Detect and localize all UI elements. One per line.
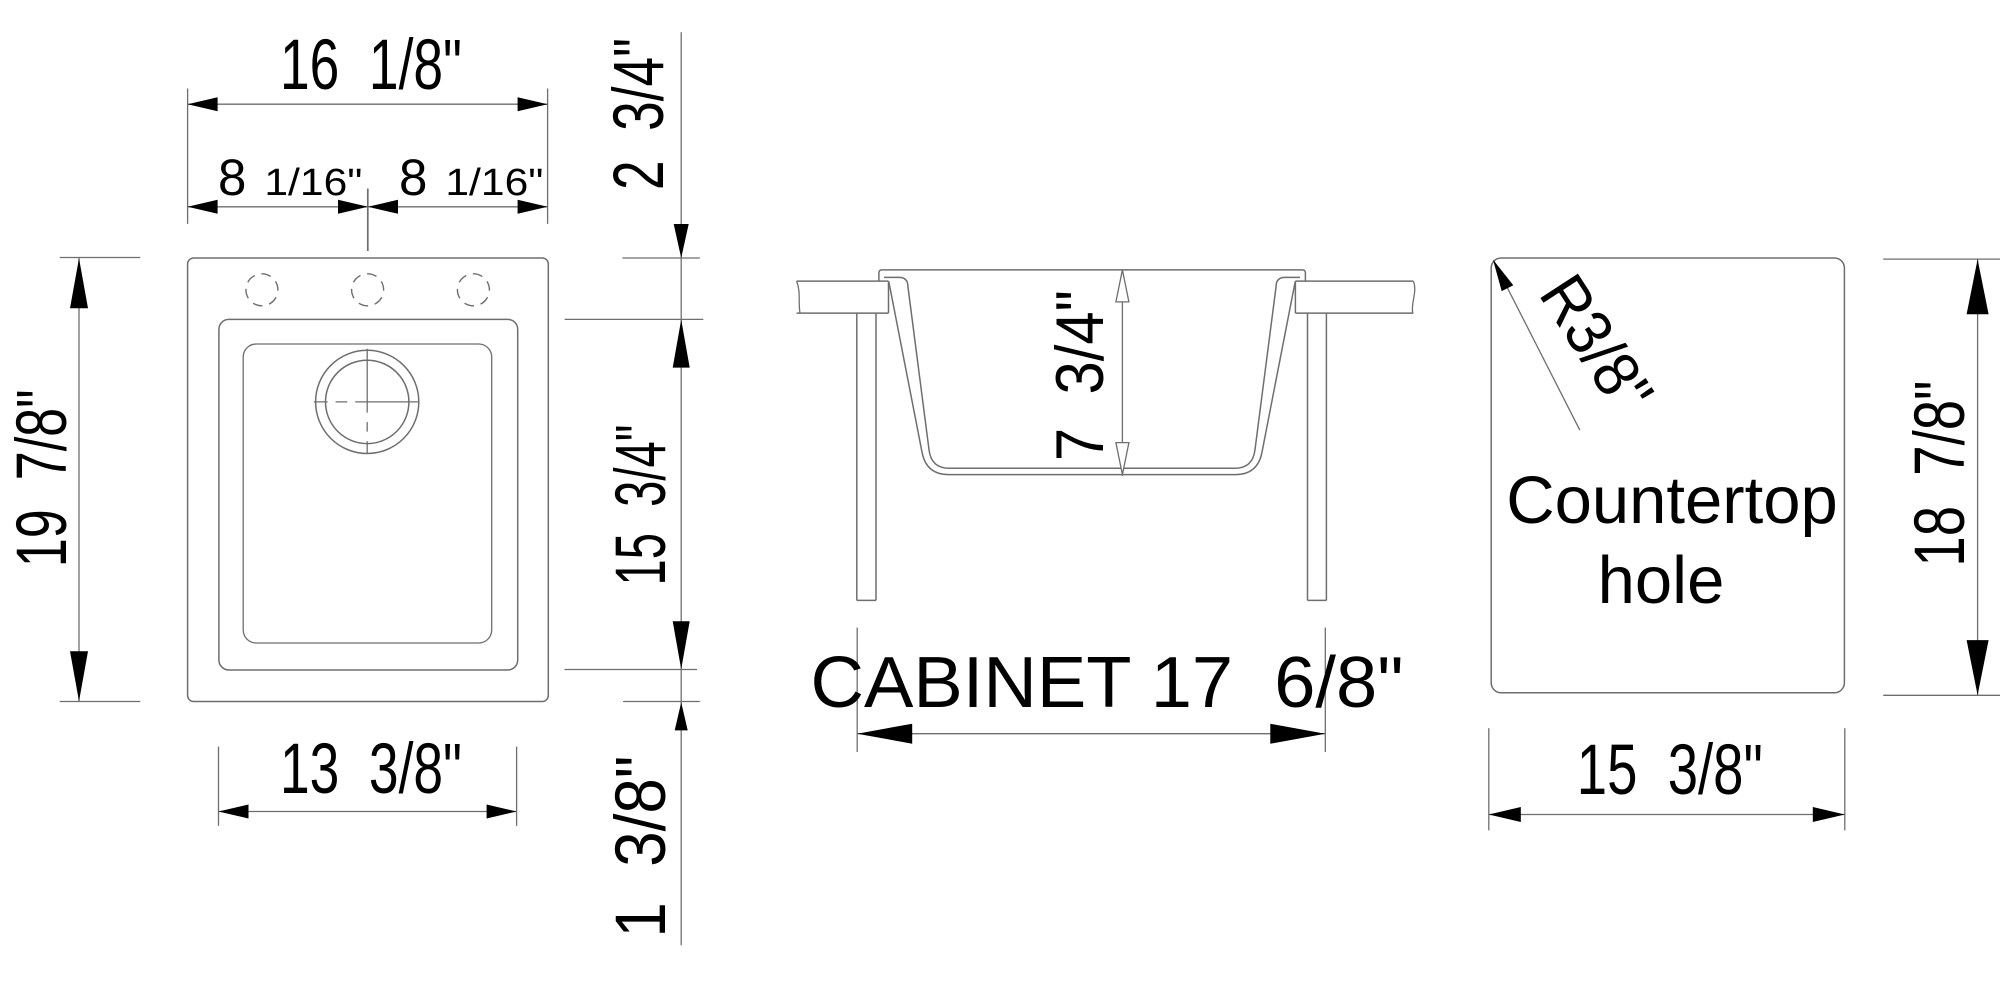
svg-text:15 3/4": 15 3/4"	[600, 425, 681, 586]
svg-text:2 3/4": 2 3/4"	[598, 38, 679, 190]
svg-text:16 1/8": 16 1/8"	[280, 24, 462, 105]
svg-text:CABINET 17 6/8": CABINET 17 6/8"	[811, 643, 1404, 723]
svg-text:19 7/8": 19 7/8"	[1, 389, 82, 567]
svg-text:hole: hole	[1598, 543, 1725, 618]
svg-text:15 3/8": 15 3/8"	[1577, 729, 1763, 810]
svg-text:1 3/8": 1 3/8"	[600, 756, 681, 938]
svg-text:13 3/8": 13 3/8"	[280, 728, 462, 809]
svg-text:Countertop: Countertop	[1506, 463, 1838, 538]
svg-text:18 7/8": 18 7/8"	[1899, 381, 1980, 567]
svg-text:7 3/4": 7 3/4"	[1041, 290, 1117, 461]
